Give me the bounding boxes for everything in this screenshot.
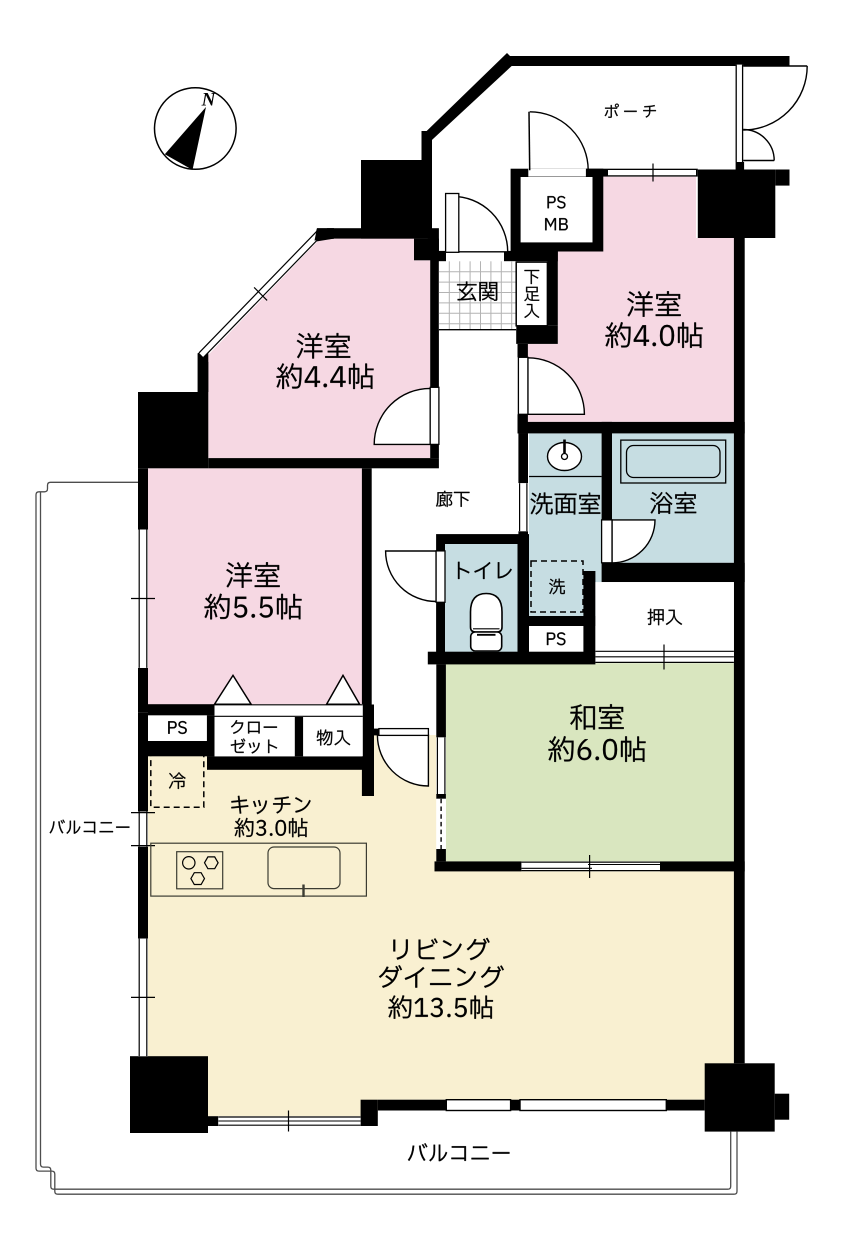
svg-text:N: N: [201, 90, 217, 111]
